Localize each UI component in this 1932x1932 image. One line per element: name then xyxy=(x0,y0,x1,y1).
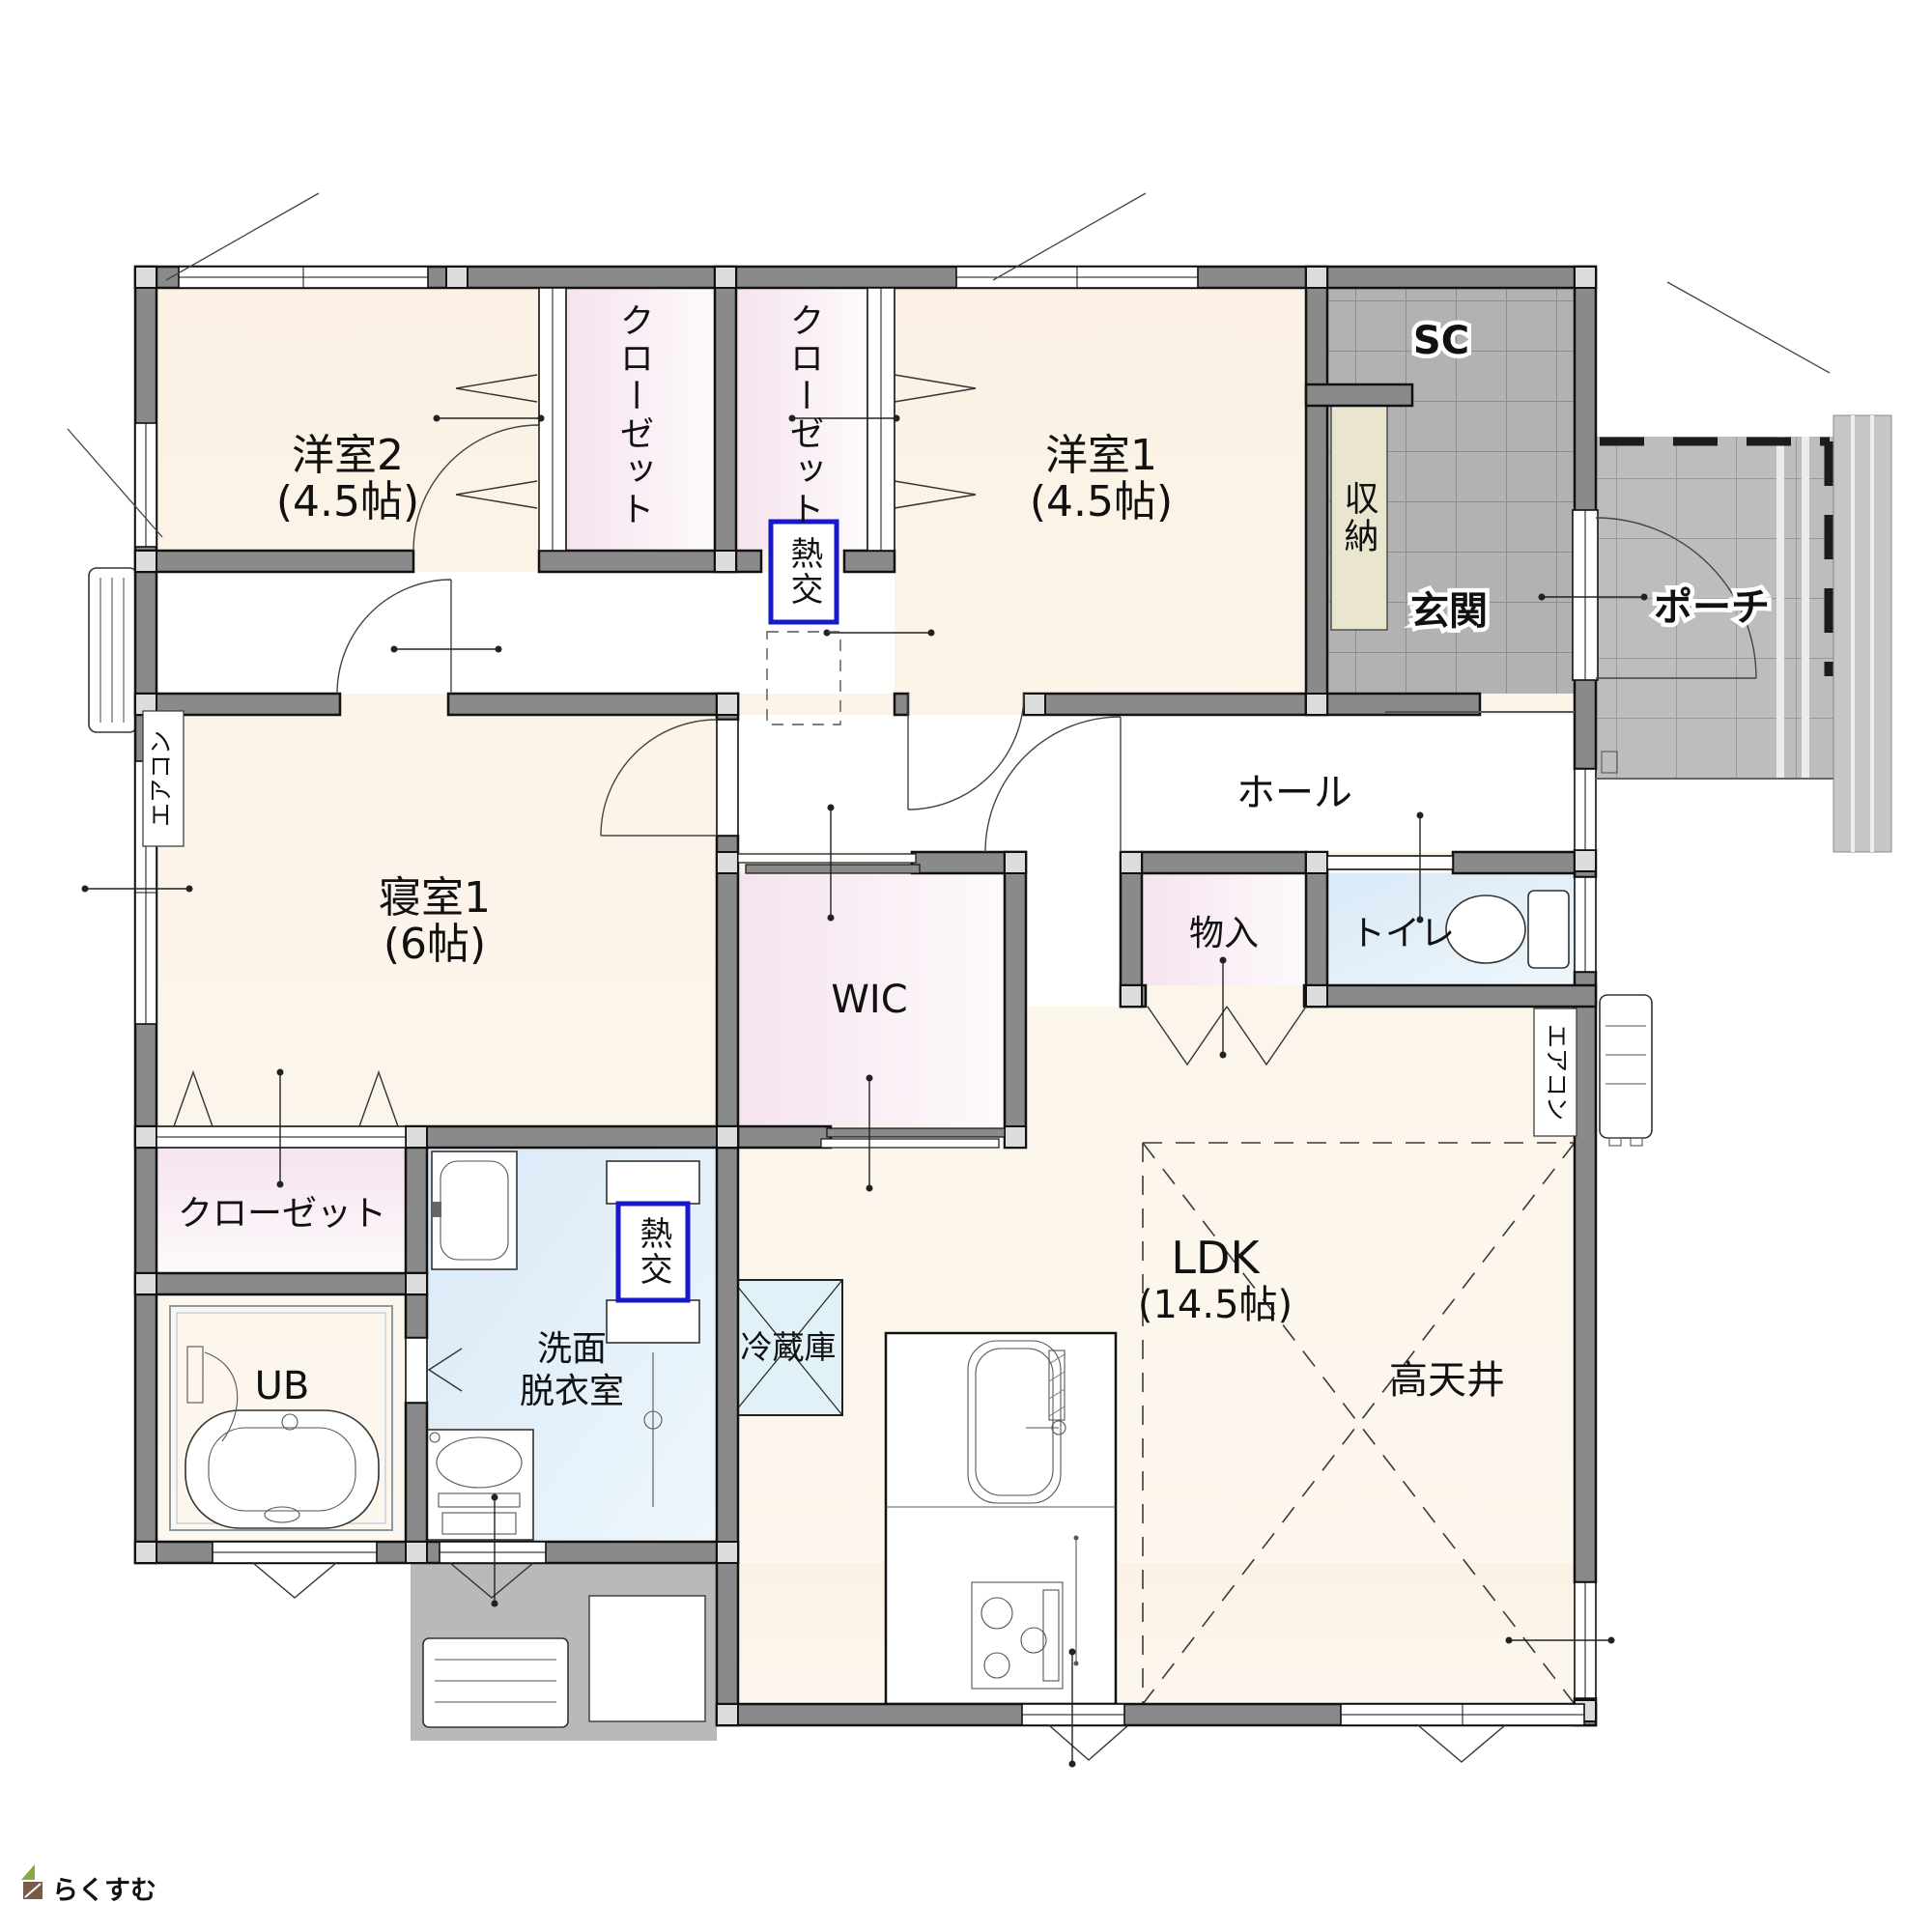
label-small-storage: 物入 xyxy=(1189,914,1259,953)
label-shoe-closet: SC xyxy=(1413,319,1469,363)
aircon-label-left: エアコン xyxy=(143,711,184,846)
closet-door xyxy=(867,288,895,551)
window xyxy=(1575,769,1596,850)
window xyxy=(179,267,428,288)
floor-ldk-south xyxy=(738,1563,1575,1704)
label-hall: ホール xyxy=(1236,771,1352,815)
window xyxy=(135,423,156,547)
porch-steps xyxy=(1833,415,1891,852)
aircon-label-right: エアコン xyxy=(1534,1009,1577,1136)
label-western1-size: (4.5帖) xyxy=(1030,477,1173,526)
label-toilet: トイレ xyxy=(1350,914,1455,953)
label-closet-a: クローゼット xyxy=(614,302,654,528)
exterior-vent xyxy=(1049,1725,1128,1760)
window xyxy=(1341,1704,1584,1725)
outdoor-ac-right xyxy=(1600,995,1652,1146)
window xyxy=(956,267,1198,288)
window xyxy=(1575,877,1596,972)
washing-machine xyxy=(425,1430,533,1540)
label-washroom-1: 洗面 xyxy=(537,1329,607,1369)
label-high-ceiling: 高天井 xyxy=(1389,1358,1505,1403)
water-tank-unit xyxy=(589,1596,705,1721)
label-bedroom1-size: (6帖) xyxy=(384,920,486,969)
logo: らくすむ xyxy=(21,1864,156,1906)
logo-text: らくすむ xyxy=(52,1876,156,1906)
label-entrance: 玄関 xyxy=(1410,589,1488,634)
label-porch: ポーチ xyxy=(1654,585,1770,630)
floorplan-svg: 熱交 熱交 洋室2 (4.5帖) 洋室1 (4.5帖) クローゼット クローゼッ… xyxy=(0,0,1932,1932)
outdoor-ac-left xyxy=(89,568,137,732)
bedroom-door-opening xyxy=(717,720,738,836)
exterior-vent xyxy=(253,1563,336,1598)
label-wic: WIC xyxy=(831,978,907,1022)
label-unit-bath: UB xyxy=(255,1364,310,1408)
window xyxy=(213,1542,377,1563)
svg-text:エアコン: エアコン xyxy=(147,730,175,827)
kitchen-fixtures xyxy=(886,1333,1116,1704)
vanity-sink xyxy=(432,1151,517,1269)
heat-pump-unit xyxy=(423,1638,568,1727)
label-western2-name: 洋室2 xyxy=(292,431,404,480)
logo-icon xyxy=(21,1864,35,1880)
svg-text:エアコン: エアコン xyxy=(1543,1024,1571,1121)
bath-door xyxy=(406,1338,427,1403)
kitchen-counter xyxy=(886,1333,1116,1704)
heat-exchanger-2-label: 熱交 xyxy=(634,1216,672,1288)
floor-hall-passage xyxy=(1026,852,1121,1007)
floor-hall xyxy=(738,715,1575,852)
label-ldk-size: (14.5帖) xyxy=(1138,1283,1293,1327)
closet-door xyxy=(156,1126,406,1148)
heat-exchanger-1-label: 熱交 xyxy=(784,536,823,608)
exterior-vent xyxy=(1418,1725,1505,1762)
window xyxy=(440,1542,546,1563)
floorplan-canvas: 熱交 熱交 洋室2 (4.5帖) 洋室1 (4.5帖) クローゼット クローゼッ… xyxy=(0,0,1932,1932)
label-storage: 収納 xyxy=(1339,480,1378,555)
label-western2-size: (4.5帖) xyxy=(276,477,419,526)
label-ldk-name: LDK xyxy=(1171,1232,1261,1284)
label-closet-c: クローゼット xyxy=(178,1194,386,1234)
toilet-fixture xyxy=(1446,891,1569,968)
toilet-pocket-door xyxy=(1327,856,1453,869)
entrance-door xyxy=(1573,510,1598,680)
label-refrigerator: 冷蔵庫 xyxy=(741,1328,837,1366)
label-closet-b: クローゼット xyxy=(784,302,824,528)
heat-exchanger-2: 熱交 xyxy=(618,1204,688,1300)
label-western1-name: 洋室1 xyxy=(1045,431,1157,480)
vanity-tap xyxy=(432,1202,441,1217)
window xyxy=(1022,1704,1124,1725)
label-bedroom1-name: 寝室1 xyxy=(379,873,491,923)
label-washroom-2: 脱衣室 xyxy=(520,1372,624,1411)
